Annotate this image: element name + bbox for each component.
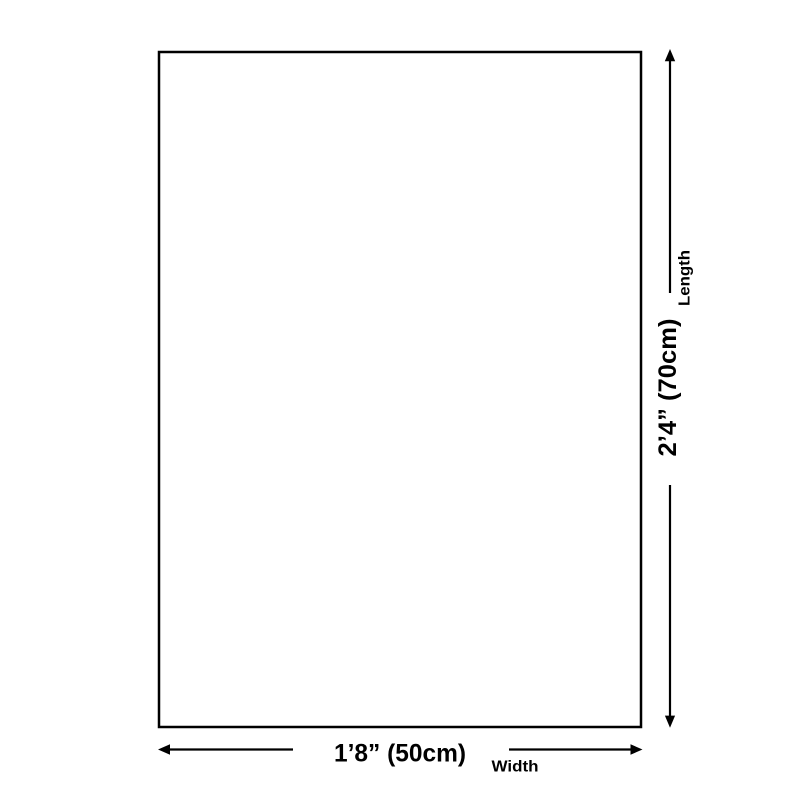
svg-text:2’4” (70cm): 2’4” (70cm) [654, 319, 682, 457]
svg-text:1’8” (50cm): 1’8” (50cm) [334, 740, 466, 768]
svg-text:Length: Length [677, 250, 694, 306]
svg-text:Width: Width [492, 759, 539, 776]
